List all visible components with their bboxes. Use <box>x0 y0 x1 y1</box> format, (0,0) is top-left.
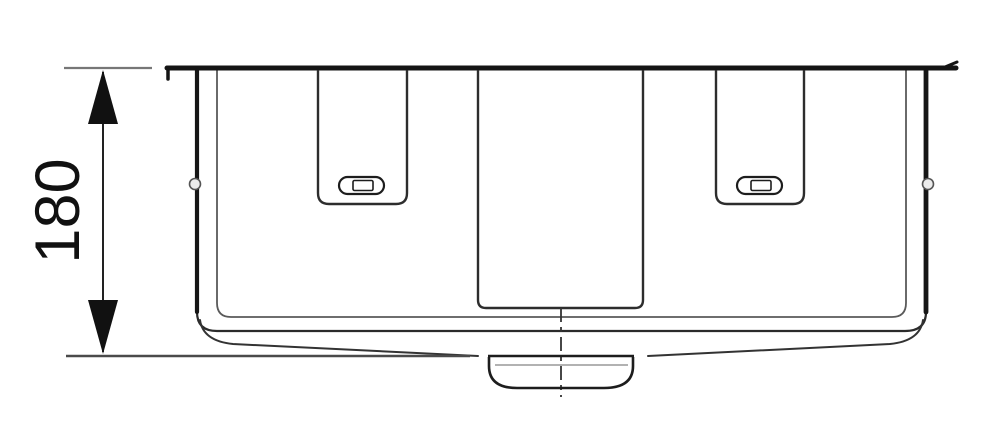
outer-shell-outline <box>197 70 926 331</box>
bracket-slot-left <box>339 177 384 194</box>
arrowhead-up-icon <box>88 70 118 124</box>
drawing-canvas: 180 <box>0 0 992 421</box>
sump-slope-left <box>200 320 478 356</box>
arrowhead-down-icon <box>88 300 118 354</box>
central-box <box>478 70 643 308</box>
sink-elevation-drawing: 180 <box>0 0 992 421</box>
dimension-annotation: 180 <box>23 68 470 356</box>
bracket-slot-right <box>737 177 782 194</box>
sink-body <box>167 62 957 356</box>
weld-stud-right-icon <box>923 179 934 190</box>
drain-outlet <box>488 308 634 397</box>
dimension-label: 180 <box>23 158 93 263</box>
weld-stud-left-icon <box>190 179 201 190</box>
inner-shell-outline <box>217 70 906 317</box>
mounting-brackets <box>318 70 804 204</box>
sump-slope-right <box>648 320 923 356</box>
